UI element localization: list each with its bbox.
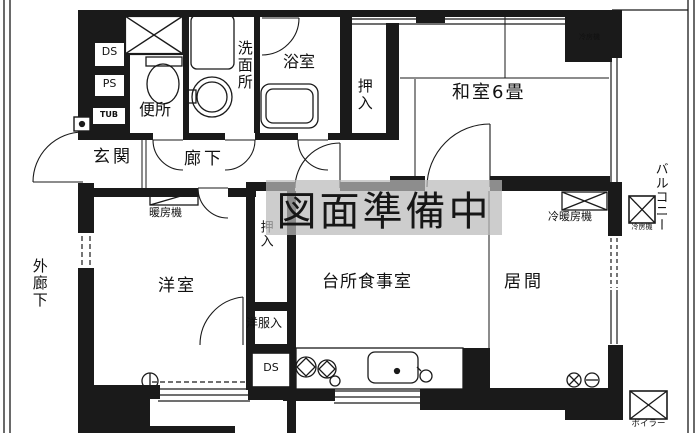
toilet-fixture xyxy=(146,57,182,104)
label-washroom: 洗面所 xyxy=(236,40,252,91)
label-ps: PS xyxy=(94,78,125,90)
label-balcony: バルコニー xyxy=(653,162,667,232)
label-living: 居間 xyxy=(504,274,544,292)
label-western-room: 洋室 xyxy=(158,278,196,296)
label-toilet: 便所 xyxy=(139,102,171,119)
label-ds-top: DS xyxy=(94,46,125,58)
kitchen-counter xyxy=(296,348,463,389)
cooler-balcony-box xyxy=(629,196,655,223)
label-hallway: 廊下 xyxy=(184,151,224,169)
label-wardrobe: 洋服入 xyxy=(246,317,282,330)
boiler-box xyxy=(630,391,667,419)
floor-plan: DS PS TUB 便所 洗面所 浴室 押入 和室6畳 冷房機 玄関 廊下 暖房… xyxy=(0,0,700,433)
label-ds-bottom: DS xyxy=(252,362,290,374)
label-entrance: 玄関 xyxy=(93,149,133,167)
label-heater: 暖房機 xyxy=(149,207,182,219)
bathtub-fixture xyxy=(261,84,318,128)
label-tub: TUB xyxy=(92,111,126,119)
label-closet-top: 押入 xyxy=(356,78,372,112)
label-ac-heater: 冷暖房機 xyxy=(548,211,592,223)
ac-heater-box xyxy=(562,192,607,210)
laundry-taps xyxy=(567,373,599,387)
label-cooler-tatami: 冷房機 xyxy=(567,34,612,41)
label-kitchen-dining: 台所食事室 xyxy=(322,274,412,292)
label-boiler: ボイラー xyxy=(625,420,672,429)
washbasin-fixture xyxy=(188,15,234,117)
label-outer-corridor: 外廊下 xyxy=(31,258,47,309)
western-room-tap xyxy=(142,373,158,389)
watermark-text: 図面準備中 xyxy=(277,179,492,237)
label-bath: 浴室 xyxy=(283,54,315,71)
entry-door-marker xyxy=(74,117,90,131)
label-japanese-room: 和室6畳 xyxy=(452,84,525,103)
watermark-band: 図面準備中 xyxy=(266,180,502,235)
